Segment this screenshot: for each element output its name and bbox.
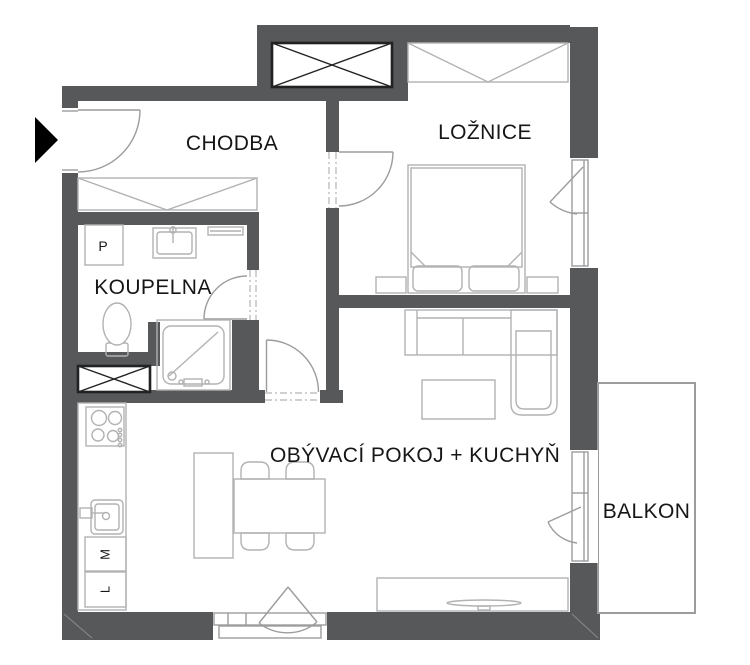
entry-arrow-icon (35, 117, 58, 163)
living-room-door (265, 340, 320, 403)
washer-label: P (95, 238, 111, 254)
bathroom-shelf (208, 227, 243, 235)
tv-bench (377, 578, 568, 611)
room-label-bedroom: LOŽNICE (435, 121, 535, 145)
fridge-label: L (98, 583, 113, 597)
bedroom-window (550, 158, 598, 268)
entry-door (62, 108, 140, 173)
kitchen-counter (78, 403, 126, 610)
room-label-living-kitchen: OBÝVACÍ POKOJ + KUCHYŇ (270, 444, 542, 468)
dining-table (234, 479, 325, 533)
room-label-balcony: BALKON (597, 500, 696, 524)
living-room-window (213, 587, 327, 640)
floor-plan: CHODBA LOŽNICE KOUPELNA OBÝVACÍ POKOJ + … (0, 0, 750, 665)
kitchen-island (194, 453, 233, 558)
floor-plan-drawing (0, 0, 750, 665)
sofa (405, 310, 557, 415)
bedroom-wardrobe (408, 43, 568, 82)
bathroom-sink (153, 226, 196, 258)
bed (408, 165, 525, 293)
shaft-bathroom (78, 366, 150, 392)
walls (62, 25, 600, 640)
hallway-wardrobe (78, 178, 257, 210)
dishwasher-label: M (98, 548, 113, 562)
shaft-top (272, 43, 392, 87)
shower (157, 320, 230, 390)
bedroom-door (326, 152, 393, 208)
coffee-table (422, 380, 495, 419)
nightstand-left (376, 277, 406, 293)
kitchen-sink (80, 500, 123, 534)
toilet (103, 303, 131, 356)
room-label-bathroom: KOUPELNA (92, 276, 214, 300)
balcony-outline (598, 383, 695, 613)
room-label-hallway: CHODBA (159, 132, 305, 156)
nightstand-right (527, 277, 558, 293)
